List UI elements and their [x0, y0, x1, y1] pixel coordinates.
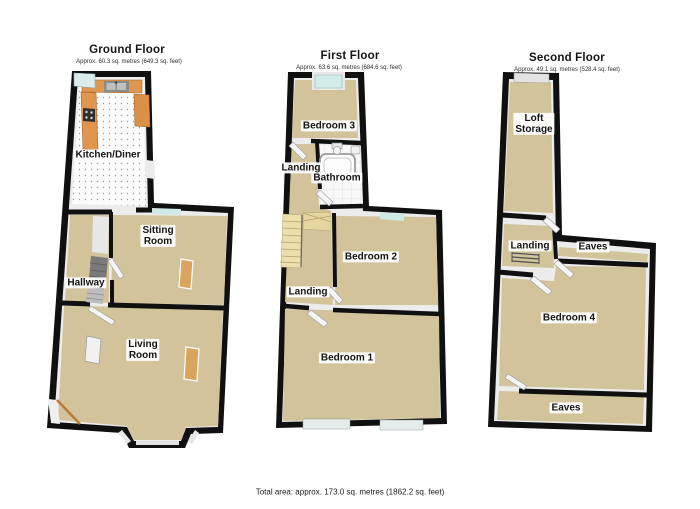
room-label-sitting-room: Sitting Room: [140, 225, 175, 247]
ground-floor-plan: [47, 71, 234, 448]
room-label-kitchen-diner: Kitchen/Diner: [73, 149, 142, 160]
bedroom3-window: [315, 75, 342, 88]
bedroom1-window-left: [303, 419, 350, 429]
room-label-landing-first-lower: Landing: [287, 286, 330, 297]
bedroom1-window-right: [380, 420, 423, 430]
ground-floor-subtitle: Approx. 60.3 sq. metres (649.3 sq. feet): [76, 59, 182, 65]
loft-storage-floor: [504, 82, 553, 213]
bedroom1-floor: [283, 309, 440, 421]
kitchen-window: [74, 73, 95, 88]
loft-window: [514, 73, 549, 83]
room-label-landing-second: Landing: [509, 240, 552, 251]
basin: [351, 146, 360, 154]
sitting-room-window: [152, 208, 181, 215]
kitchen-side-door-opening: [146, 160, 155, 179]
kitchen-hob: [83, 108, 95, 122]
room-label-eaves-top: Eaves: [577, 241, 610, 252]
living-room-side-window: [85, 336, 101, 364]
sitting-room-radiator: [179, 259, 193, 289]
total-area-label: Total area: approx. 173.0 sq. metres (18…: [256, 488, 445, 497]
room-label-bedroom-4: Bedroom 4: [541, 312, 597, 323]
bedroom4-floor: [499, 266, 646, 390]
kitchen-tall-unit: [134, 94, 150, 127]
room-label-bedroom-1: Bedroom 1: [319, 352, 375, 363]
living-room-floor: [58, 306, 223, 440]
second-floor-title: Second Floor: [529, 52, 605, 64]
first-floor-title: First Floor: [320, 50, 379, 62]
floorplan-page: Ground Floor Approx. 60.3 sq. metres (64…: [0, 0, 700, 509]
room-label-bedroom-3: Bedroom 3: [301, 120, 357, 131]
room-label-bathroom: Bathroom: [311, 172, 362, 183]
ground-floor-title: Ground Floor: [89, 44, 165, 56]
second-floor-subtitle: Approx. 49.1 sq. metres (528.4 sq. feet): [514, 67, 620, 73]
room-label-hallway: Hallway: [65, 277, 106, 288]
living-room-radiator: [184, 347, 199, 381]
room-label-bedroom-2: Bedroom 2: [343, 251, 399, 262]
first-floor-subtitle: Approx. 63.6 sq. metres (684.6 sq. feet): [296, 65, 402, 71]
room-label-loft-storage: Loft Storage: [513, 113, 554, 135]
room-label-living-room: Living Room: [126, 339, 159, 361]
room-label-eaves-bottom: Eaves: [550, 402, 583, 413]
kitchen-sink: [104, 81, 129, 92]
